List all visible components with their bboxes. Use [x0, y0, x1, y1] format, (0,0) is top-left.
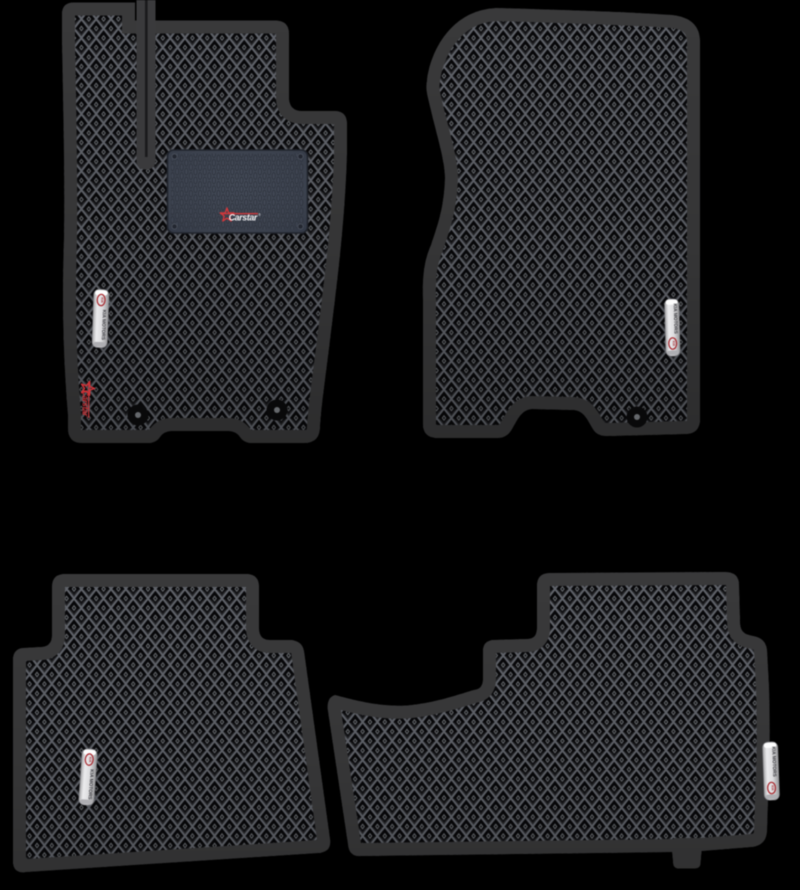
svg-text:KIA: KIA [771, 785, 775, 791]
svg-text:KIA MOTORS: KIA MOTORS [672, 303, 679, 334]
svg-text:Carstar: Carstar [81, 390, 90, 417]
svg-text:KIA: KIA [672, 341, 676, 347]
svg-text:KIA MOTORS: KIA MOTORS [100, 310, 107, 341]
svg-text:KIA: KIA [100, 297, 104, 303]
svg-text:KIA MOTORS: KIA MOTORS [770, 746, 777, 777]
svg-text:Carstar: Carstar [229, 213, 258, 223]
